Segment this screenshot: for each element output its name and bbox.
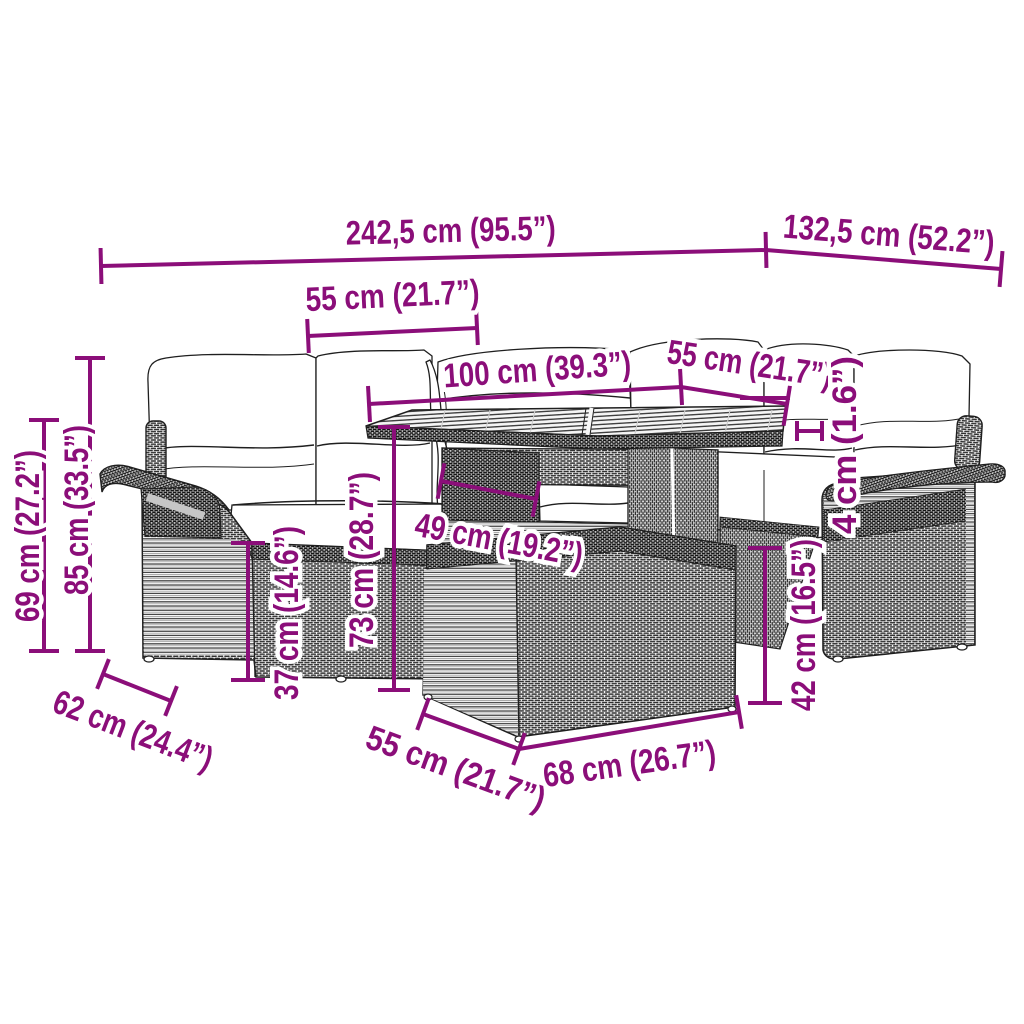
svg-text:69 cm (27.2”): 69 cm (27.2”) (9, 450, 47, 622)
svg-text:242,5 cm (95.5”): 242,5 cm (95.5”) (345, 209, 556, 252)
svg-text:4 cm (1.6”): 4 cm (1.6”) (826, 356, 864, 534)
svg-text:37 cm (14.6”): 37 cm (14.6”) (268, 526, 306, 700)
svg-text:73 cm (28.7”): 73 cm (28.7”) (343, 472, 381, 648)
svg-text:85 cm (33.5”): 85 cm (33.5”) (58, 425, 96, 595)
svg-text:42 cm (16.5”): 42 cm (16.5”) (785, 539, 823, 711)
